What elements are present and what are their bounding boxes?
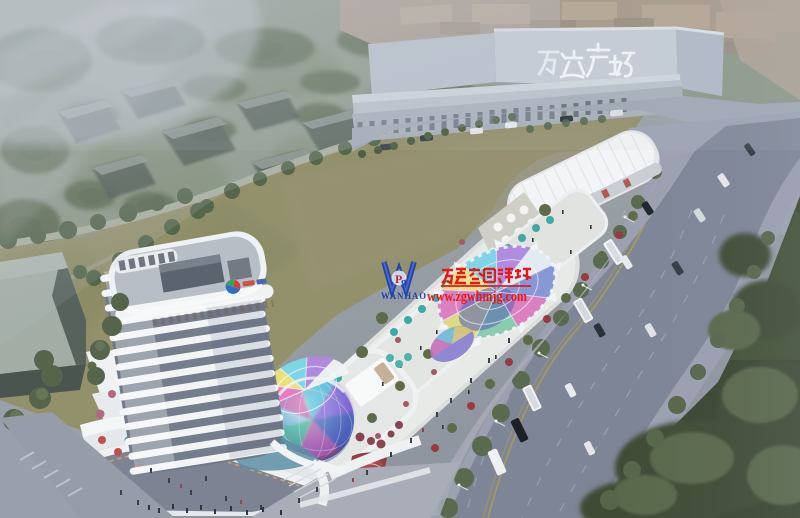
svg-text:g: g [401,276,407,288]
svg-text:www.zgwhmjg.com: www.zgwhmjg.com [427,289,527,305]
svg-text:WANHAO: WANHAO [381,292,427,302]
